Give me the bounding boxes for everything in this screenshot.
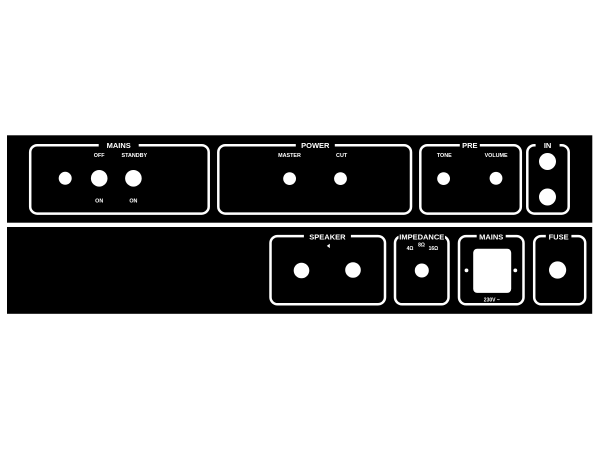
svg-text:4Ω: 4Ω — [407, 246, 414, 252]
svg-text:TONE: TONE — [437, 153, 452, 159]
svg-text:PRE: PRE — [462, 141, 477, 150]
svg-text:STANDBY: STANDBY — [121, 153, 147, 159]
svg-text:OFF: OFF — [94, 153, 105, 159]
svg-text:IMPEDANCE: IMPEDANCE — [399, 232, 444, 241]
svg-text:POWER: POWER — [301, 141, 330, 150]
svg-text:CUT: CUT — [336, 153, 348, 159]
svg-text:FUSE: FUSE — [549, 232, 569, 241]
svg-text:16Ω: 16Ω — [429, 246, 439, 252]
svg-text:8Ω: 8Ω — [418, 242, 425, 248]
svg-text:MAINS: MAINS — [479, 232, 503, 241]
svg-text:ON: ON — [129, 199, 137, 205]
svg-text:MASTER: MASTER — [278, 153, 301, 159]
svg-text:SPEAKER: SPEAKER — [309, 232, 346, 241]
svg-text:VOLUME: VOLUME — [485, 153, 508, 159]
svg-text:MAINS: MAINS — [107, 141, 131, 150]
svg-text:230V ~: 230V ~ — [484, 298, 500, 304]
svg-text:IN: IN — [544, 141, 552, 150]
svg-text:ON: ON — [95, 199, 103, 205]
